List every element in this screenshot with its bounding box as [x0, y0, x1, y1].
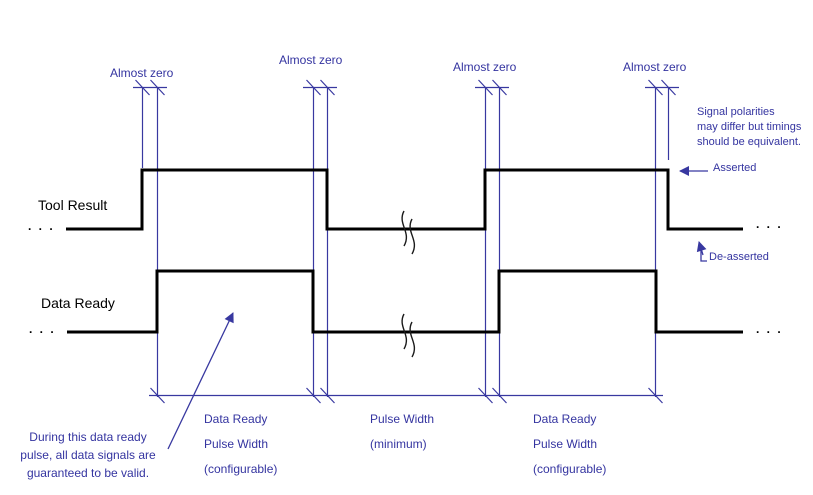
during-note: During this data ready pulse, all data s…: [0, 428, 176, 482]
during-note-line-3: guaranteed to be valid.: [0, 464, 176, 482]
during-note-line-2: pulse, all data signals are: [0, 446, 176, 464]
almost-zero-label-1: Almost zero: [110, 66, 173, 80]
almost-zero-marker-4: [645, 80, 679, 95]
tool-result-label: Tool Result: [38, 198, 107, 212]
almost-zero-marker-3: [475, 80, 509, 95]
dimension-label-data-ready-pulse-width-1: Data Ready Pulse Width (configurable): [204, 407, 277, 482]
time-break-tool-result: [402, 211, 414, 254]
pulse-width-dimension-line: [149, 388, 663, 403]
almost-zero-label-4: Almost zero: [623, 60, 686, 74]
data-ready-label: Data Ready: [41, 296, 115, 310]
time-break-data-ready: [402, 314, 414, 357]
tool-result-left-ellipsis: . . .: [28, 219, 55, 233]
polarity-note-line-1: Signal polarities: [697, 105, 801, 120]
almost-zero-label-3: Almost zero: [453, 60, 516, 74]
dimension-label-pulse-width-minimum: Pulse Width (minimum): [370, 407, 434, 457]
almost-zero-label-2: Almost zero: [279, 53, 342, 67]
de-asserted-arrow: [699, 242, 707, 261]
timing-diagram: Almost zero Almost zero Almost zero Almo…: [0, 0, 813, 495]
dim1-line-3: (configurable): [204, 457, 277, 482]
data-ready-left-ellipsis: . . .: [29, 322, 56, 336]
data-ready-right-ellipsis: . . .: [756, 322, 783, 336]
polarity-note-line-3: should be equivalent.: [697, 135, 801, 150]
dim3-line-1: Data Ready: [533, 407, 606, 432]
almost-zero-marker-1: [133, 80, 167, 95]
tool-result-waveform: [66, 170, 743, 229]
polarity-note: Signal polarities may differ but timings…: [697, 105, 801, 150]
dim2-line-1: Pulse Width: [370, 407, 434, 432]
polarity-note-line-2: may differ but timings: [697, 120, 801, 135]
dim3-line-2: Pulse Width: [533, 432, 606, 457]
tool-result-right-ellipsis: . . .: [756, 217, 783, 231]
almost-zero-marker-2: [303, 80, 337, 95]
dim2-line-2: (minimum): [370, 432, 434, 457]
data-ready-waveform: [67, 271, 743, 332]
dim1-line-2: Pulse Width: [204, 432, 277, 457]
asserted-label: Asserted: [713, 161, 756, 176]
dim1-line-1: Data Ready: [204, 407, 277, 432]
during-note-line-1: During this data ready: [0, 428, 176, 446]
de-asserted-label: De-asserted: [709, 250, 769, 265]
dimension-label-data-ready-pulse-width-2: Data Ready Pulse Width (configurable): [533, 407, 606, 482]
dim3-line-3: (configurable): [533, 457, 606, 482]
